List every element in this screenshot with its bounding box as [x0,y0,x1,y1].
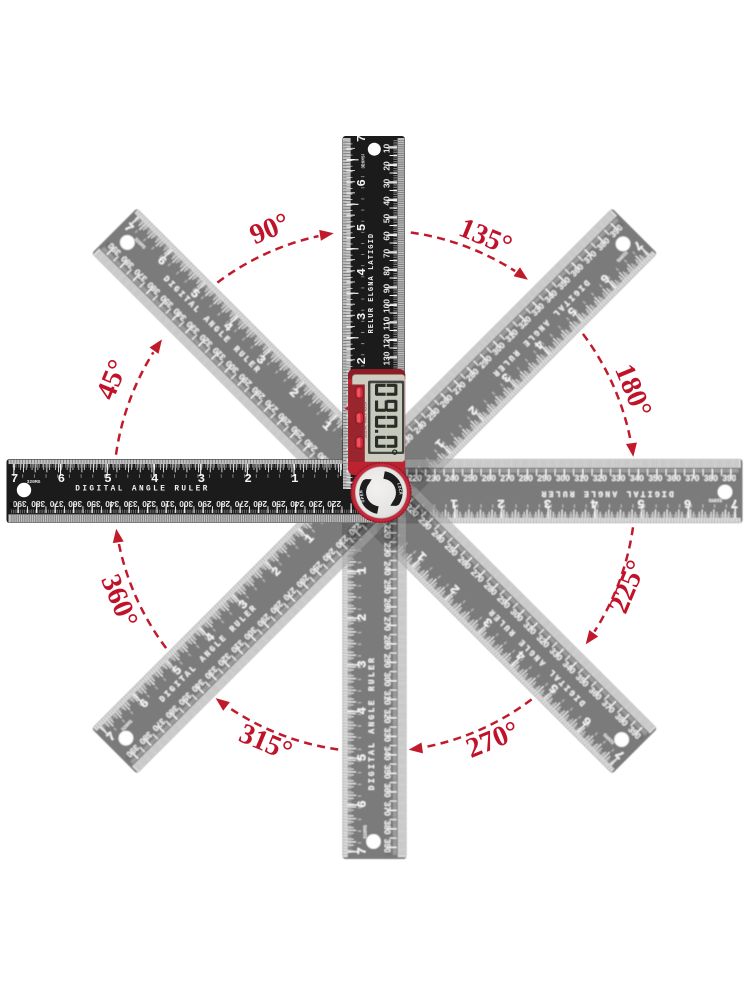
svg-text:DIGITAL ANGLE RULER: DIGITAL ANGLE RULER [364,402,368,438]
